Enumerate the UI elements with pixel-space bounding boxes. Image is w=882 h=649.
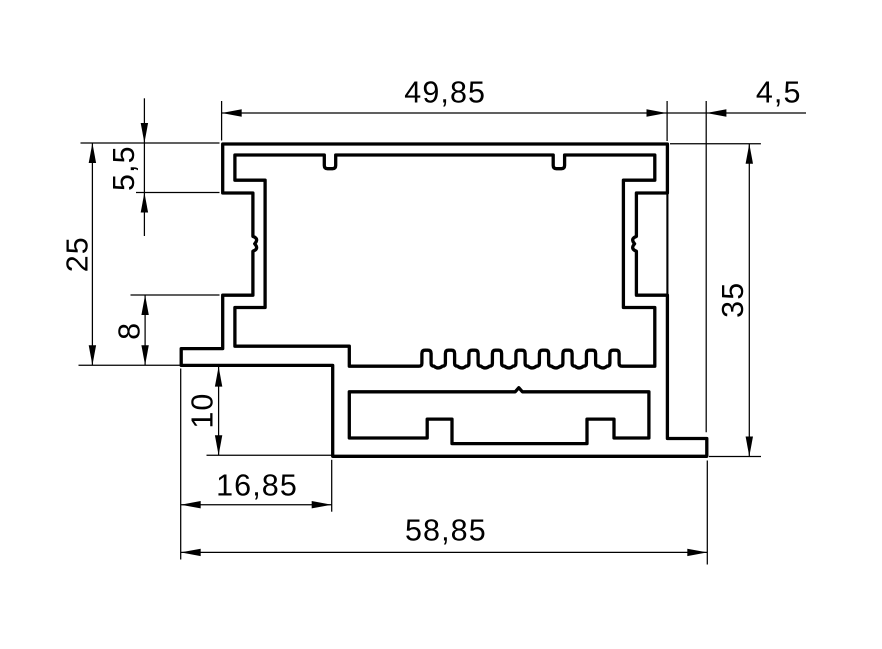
svg-text:35: 35 (716, 282, 750, 318)
svg-text:10: 10 (186, 393, 220, 429)
svg-text:5,5: 5,5 (107, 145, 141, 191)
svg-text:16,85: 16,85 (216, 468, 298, 502)
svg-text:49,85: 49,85 (404, 76, 486, 110)
svg-text:58,85: 58,85 (405, 514, 487, 548)
svg-text:25: 25 (60, 236, 94, 272)
svg-text:4,5: 4,5 (756, 76, 802, 110)
svg-text:8: 8 (113, 322, 147, 340)
